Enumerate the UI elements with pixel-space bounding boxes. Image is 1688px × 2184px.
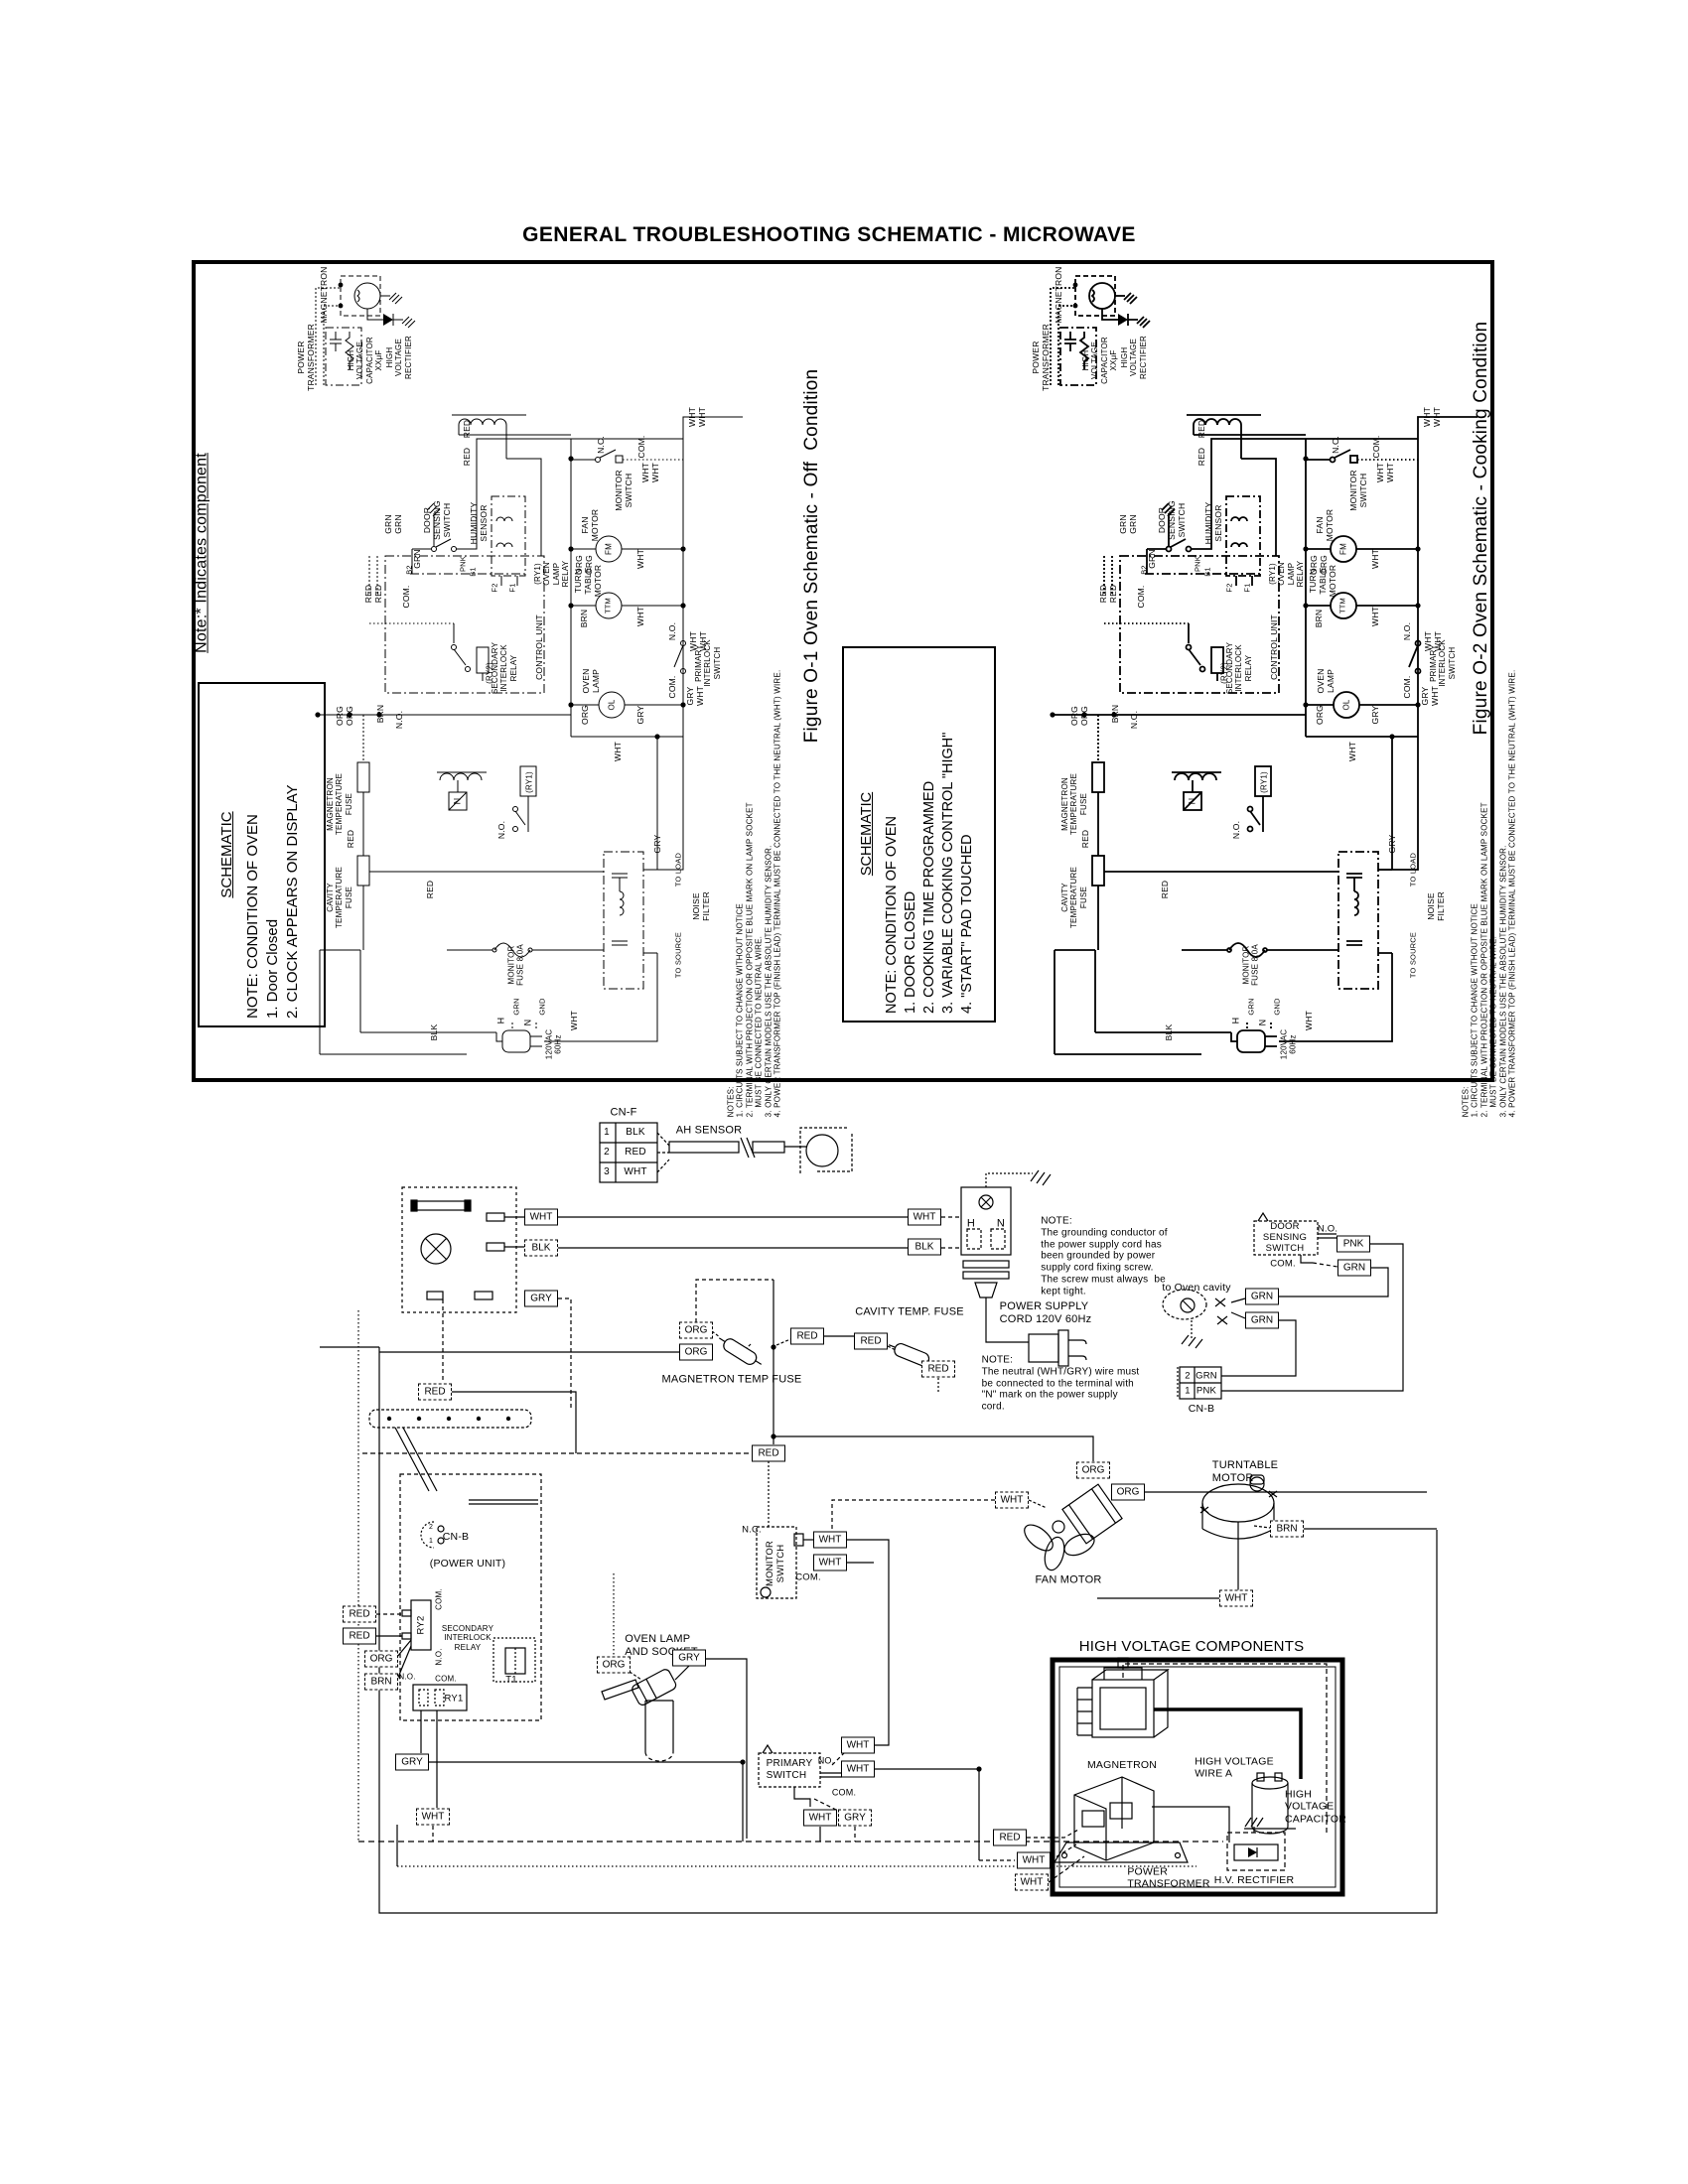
wire-tag-red: RED <box>854 1333 888 1350</box>
wire-tag-wht: WHT <box>416 1809 450 1826</box>
control-unit-label: CONTROL UNIT <box>1269 614 1279 680</box>
schematic-label: RED <box>1080 830 1090 849</box>
wire-tag-red: RED <box>343 1606 376 1623</box>
schematic-label: COM. <box>401 586 411 609</box>
hv-capacitor-label: HIGH VOLTAGE CAPACITOR <box>1285 1788 1346 1825</box>
schematic-label: CN-B <box>443 1531 469 1543</box>
schematic-label: TO LOAD <box>1410 853 1419 887</box>
cavity-temp-fuse-label: CAVITY TEMPERATURE FUSE <box>1060 867 1088 928</box>
schematic-label: OL <box>607 699 616 710</box>
wire-tag-red: RED <box>993 1830 1027 1846</box>
wire-tag-gry: GRY <box>395 1754 429 1771</box>
schematic-label: N <box>997 1218 1005 1231</box>
turntable-motor-label: TURN TABLE MOTOR <box>1308 565 1337 597</box>
primary-interlock-label: PRIMARY INTERLOCK SWITCH <box>694 639 722 687</box>
magnetron-temp-fuse-label: MAGNETRON TEMP FUSE <box>662 1374 802 1387</box>
wire-tag-blk: BLK <box>524 1240 558 1257</box>
schematic-label: PNK <box>1195 556 1203 572</box>
wire-tag-pnk: PNK <box>1336 1236 1370 1253</box>
schematic-label: COM. <box>1136 586 1146 609</box>
schematic-label: RED <box>425 881 435 899</box>
schematic-label: N.O. <box>1402 622 1412 640</box>
noise-filter-label: NOISE FILTER <box>1426 891 1446 921</box>
schematic-label: GRY <box>635 706 645 725</box>
schematic-label: GND <box>1274 998 1283 1015</box>
schematic-label: RY2 <box>415 1616 426 1635</box>
hv-capacitor-label: HIGH VOLTAGE CAPACITOR XXμF <box>347 337 384 384</box>
wire-tag-org: ORG <box>679 1322 713 1339</box>
schematic-label: H <box>967 1218 975 1231</box>
schematic-label: RED <box>1196 420 1206 439</box>
schematic-label: RED <box>462 448 472 467</box>
monitor-fuse-label: MONITOR FUSE 8.0A <box>1242 944 1261 986</box>
wire-tag-brn: BRN <box>1270 1521 1304 1538</box>
schematic-label: WHT <box>1304 1011 1314 1030</box>
magnetron-label: MAGNETRON <box>1087 1759 1157 1771</box>
schematic-label: WHT <box>1370 607 1380 626</box>
wire-tag-grn: GRN <box>1245 1312 1279 1329</box>
schematic-label: WHT WHT <box>687 407 707 427</box>
schematic-label: N.O. <box>667 622 677 640</box>
monitor-switch-label: MONITOR SWITCH <box>1348 470 1368 510</box>
schematic-label: BLK <box>626 1127 645 1139</box>
neutral-note: NOTE: The neutral (WHT/GRY) wire must be… <box>982 1355 1140 1414</box>
schematic-label: WHT <box>569 1011 579 1030</box>
schematic-label: GRY <box>1387 835 1397 854</box>
wire-tag-org: ORG <box>1111 1484 1145 1501</box>
schematic-label: COM. <box>636 436 646 459</box>
door-sensing-switch-label: DOOR SENSING SWITCH <box>1263 1221 1307 1255</box>
schematic-label: 2 <box>429 1524 433 1532</box>
supply-voltage-label: 120VAC 60Hz <box>1280 1029 1299 1059</box>
schematic-label: COM. <box>435 1674 457 1683</box>
schematic-label: BLK <box>1164 1024 1174 1041</box>
schematic-notes: NOTES: 1. CIRCUITS SUBJECT TO CHANGE WIT… <box>727 670 783 1118</box>
door-sensing-label: DOOR SENSING SWITCH <box>422 500 452 540</box>
schematic-label: ORG <box>1315 705 1325 725</box>
schematic-label: 1 <box>1185 1385 1190 1396</box>
wire-tag-red: RED <box>752 1445 785 1462</box>
schematic-label: WHT <box>613 742 623 761</box>
humidity-sensor-label: HUMIDITY SENSOR <box>469 502 489 545</box>
ah-sensor-label: AH SENSOR <box>676 1125 743 1138</box>
schematic-label: N.C. <box>1331 436 1340 454</box>
schematic-label: WHT <box>1370 549 1380 569</box>
schematic-label: H <box>1231 1018 1242 1024</box>
schematic-label: N.O. <box>398 1672 415 1681</box>
schematic-label: RED RED <box>1098 585 1118 604</box>
schematic-label: (RY1) <box>1259 771 1268 793</box>
wire-tag-wht: WHT <box>1219 1590 1253 1607</box>
schematic-label: 1 <box>429 1538 433 1546</box>
power-transformer-label: POWER TRANSFORMER <box>1127 1866 1209 1891</box>
schematic-label: B2 <box>406 565 415 575</box>
hv-rectifier-label: HIGH VOLTAGE RECTIFIER <box>1120 336 1148 379</box>
schematic-label: WHT WHT <box>640 463 660 482</box>
wire-tag-red: RED <box>921 1361 955 1378</box>
schematic-label: TO LOAD <box>675 853 684 887</box>
wire-tag-org: ORG <box>597 1657 631 1674</box>
schematic-label: ORG ORG <box>335 706 354 726</box>
schematic-label: PNK <box>460 556 469 572</box>
turntable-motor-label: TURN TABLE MOTOR <box>573 565 603 597</box>
schematic-label: GRY <box>652 835 662 854</box>
hv-rectifier-label: HIGH VOLTAGE RECTIFIER <box>385 336 413 379</box>
magnetron-label: MAGNETRON <box>319 266 329 323</box>
schematic-label: 3 <box>604 1166 610 1178</box>
fan-motor-label: FAN MOTOR <box>1036 1574 1102 1587</box>
schematic-label: RED RED <box>363 585 383 604</box>
schematic-label: WHT <box>635 607 645 626</box>
schematic-label: BRN <box>1314 610 1324 628</box>
schematic-label: F2 <box>492 583 500 592</box>
schematic-label: ORG <box>580 705 590 725</box>
wire-tag-wht: WHT <box>1017 1852 1051 1869</box>
oven-lamp-relay-label: (RY1) OVEN LAMP RELAY <box>1268 561 1306 588</box>
primary-switch-label: PRIMARY SWITCH <box>767 1758 813 1782</box>
schematic-label: GRY WHT <box>1420 686 1440 706</box>
magnetron-temp-fuse-label: MAGNETRON TEMPERATURE FUSE <box>326 773 353 835</box>
schematic-label: COM. <box>1270 1258 1296 1269</box>
magnetron-temp-fuse-label: MAGNETRON TEMPERATURE FUSE <box>1060 773 1088 835</box>
wire-tag-wht: WHT <box>995 1492 1029 1509</box>
wire-tag-wht: WHT <box>813 1555 847 1571</box>
secondary-interlock-label: SECONDARY INTERLOCK RELAY <box>1225 642 1253 694</box>
schematic-label: TO SOURCE <box>1410 932 1419 978</box>
schematic-label: N.O. <box>1318 1223 1337 1234</box>
oven-lamp-label: OVEN LAMP <box>1316 669 1336 694</box>
schematic-label: TTM <box>1339 598 1348 614</box>
schematic-label: OL <box>1341 699 1350 710</box>
oven-lamp-relay-label: (RY1) OVEN LAMP RELAY <box>533 561 571 588</box>
wire-tag-gry: GRY <box>672 1650 706 1667</box>
schematic-label: BLK <box>429 1024 439 1041</box>
schematic-notes: NOTES: 1. CIRCUITS SUBJECT TO CHANGE WIT… <box>1462 670 1518 1118</box>
schematic-label: GRN GRN <box>383 514 403 534</box>
schematic-label: WHT <box>624 1166 646 1178</box>
magnetron-label: MAGNETRON <box>1054 266 1063 323</box>
cnb-connector-label: CN-B <box>1189 1403 1214 1415</box>
schematic-label: BRN <box>1110 705 1120 724</box>
schematic-label: 2 <box>1185 1370 1190 1381</box>
wire-tag-grn: GRN <box>1337 1260 1371 1277</box>
power-supply-cord-label: POWER SUPPLY CORD 120V 60Hz <box>1000 1300 1092 1326</box>
schematic-label: F1 <box>509 583 518 592</box>
grounding-note: NOTE: The grounding conductor of the pow… <box>1041 1216 1168 1298</box>
cavity-temp-fuse-label: CAVITY TEMPERATURE FUSE <box>326 867 353 928</box>
wire-tag-wht: WHT <box>1015 1874 1049 1891</box>
schematic-label: F2 <box>1226 583 1235 592</box>
schematic-label: RED <box>346 830 355 849</box>
schematic-label: GND <box>539 998 548 1015</box>
schematic-label: N.O. <box>394 711 404 729</box>
wire-tag-wht: WHT <box>813 1532 847 1549</box>
schematic-label: GRN <box>1248 998 1257 1015</box>
primary-interlock-label: PRIMARY INTERLOCK SWITCH <box>1429 639 1457 687</box>
schematic-label: COM. <box>795 1571 821 1582</box>
schematic-label: N.O. <box>1129 711 1139 729</box>
schematic-label: GRN <box>1196 1370 1217 1381</box>
wire-tag-wht: WHT <box>908 1209 941 1226</box>
wire-tag-org: ORG <box>364 1651 398 1668</box>
hv-components-title: HIGH VOLTAGE COMPONENTS <box>1079 1638 1305 1656</box>
schematic-label: COM. <box>1371 436 1381 459</box>
hv-rectifier-label: H.V. RECTIFIER <box>1214 1874 1295 1886</box>
monitor-switch-label: MONITOR SWITCH <box>614 470 633 510</box>
turntable-motor-label: TURNTABLE MOTOR <box>1212 1459 1278 1485</box>
schematic-label: COM. <box>1402 676 1412 699</box>
schematic-label: GRN <box>513 998 522 1015</box>
power-transformer-label: POWER TRANSFORMER <box>296 324 316 391</box>
cnf-connector-label: CN-F <box>610 1107 636 1120</box>
power-unit-label: (POWER UNIT) <box>430 1558 505 1570</box>
schematic-label: FM <box>604 543 613 555</box>
humidity-sensor-label: HUMIDITY SENSOR <box>1203 502 1223 545</box>
schematic-label: PNK <box>1196 1385 1216 1396</box>
schematic-label: (RY1) <box>524 771 533 793</box>
oven-cavity-label: to Oven cavity <box>1162 1282 1230 1294</box>
schematic-label: FM <box>1338 543 1347 555</box>
schematic-label: TTM <box>605 598 614 614</box>
control-unit-label: CONTROL UNIT <box>534 614 544 680</box>
hv-wire-a-label: HIGH VOLTAGE WIRE A <box>1195 1756 1274 1781</box>
schematic-label: WHT WHT <box>1422 407 1442 427</box>
schematic-label: RY1 <box>445 1693 464 1704</box>
wire-tag-gry: GRY <box>524 1291 558 1307</box>
schematic-label: N <box>453 798 464 805</box>
schematic-label: N.O. <box>496 821 506 839</box>
schematic-label: WHT <box>1347 742 1357 761</box>
wire-tag-red: RED <box>418 1384 452 1401</box>
wire-tag-red: RED <box>790 1328 824 1345</box>
schematic-label: F1 <box>1244 583 1253 592</box>
wire-tag-wht: WHT <box>524 1209 558 1226</box>
schematic-label: RED <box>625 1147 646 1159</box>
schematic-label: B1 <box>1204 567 1213 577</box>
wire-tag-wht: WHT <box>841 1761 875 1778</box>
schematic-label: GRY <box>1370 706 1380 725</box>
schematic-label: N <box>1258 1020 1269 1026</box>
schematic-label: 1 <box>604 1127 610 1139</box>
cavity-temp-fuse-label: CAVITY TEMP. FUSE <box>855 1306 964 1319</box>
page: GENERAL TROUBLESHOOTING SCHEMATIC - MICR… <box>0 0 1688 2184</box>
wire-tag-brn: BRN <box>364 1674 398 1691</box>
schematic-label: T1 <box>505 1674 517 1685</box>
schematic-label: COM. <box>832 1788 856 1799</box>
wire-tag-grn: GRN <box>1245 1289 1279 1305</box>
monitor-fuse-label: MONITOR FUSE 8.0A <box>507 944 526 986</box>
hv-capacitor-label: HIGH VOLTAGE CAPACITOR XXμF <box>1081 337 1119 384</box>
wire-tag-gry: GRY <box>838 1810 872 1827</box>
schematic-label: RED <box>462 420 472 439</box>
schematic-label: RED <box>1160 881 1170 899</box>
schematic-label: 2 <box>604 1147 610 1159</box>
schematic-label: WHT <box>635 549 645 569</box>
monitor-switch-label: MONITOR SWITCH <box>765 1541 786 1586</box>
wire-tag-org: ORG <box>679 1344 713 1361</box>
schematic-label: B1 <box>470 567 479 577</box>
schematic-label: RED <box>1196 448 1206 467</box>
schematic-label: B2 <box>1141 565 1150 575</box>
schematic-label: COM. <box>434 1588 443 1610</box>
schematic-label: GRY WHT <box>685 686 705 706</box>
schematic-label: BRN <box>579 610 589 628</box>
schematic-label: WHT WHT <box>1375 463 1395 482</box>
schematic-label: GRN GRN <box>1118 514 1138 534</box>
wire-tag-org: ORG <box>1076 1462 1110 1479</box>
schematic-label: COM. <box>667 676 677 699</box>
door-sensing-label: DOOR SENSING SWITCH <box>1157 500 1187 540</box>
schematic-artwork <box>0 0 1688 2184</box>
schematic-label: TO SOURCE <box>675 932 684 978</box>
schematic-label: N.O. <box>1231 821 1241 839</box>
oven-lamp-label: OVEN LAMP <box>581 669 601 694</box>
wire-tag-red: RED <box>343 1628 376 1645</box>
schematic-label: BRN <box>375 705 385 724</box>
power-transformer-label: POWER TRANSFORMER <box>1031 324 1051 391</box>
schematic-label: ORG ORG <box>1069 706 1089 726</box>
supply-voltage-label: 120VAC 60Hz <box>545 1029 564 1059</box>
schematic-label: N.C. <box>596 436 606 454</box>
wire-tag-wht: WHT <box>803 1810 837 1827</box>
fan-motor-label: FAN MOTOR <box>580 509 600 541</box>
schematic-label: NO. <box>818 1756 835 1767</box>
wire-tag-blk: BLK <box>908 1239 941 1256</box>
wire-tag-wht: WHT <box>841 1737 875 1754</box>
noise-filter-label: NOISE FILTER <box>691 891 711 921</box>
schematic-label: N.C. <box>742 1524 762 1535</box>
schematic-label: H <box>496 1018 507 1024</box>
secondary-interlock-relay-label: SECONDARY INTERLOCK RELAY <box>442 1624 493 1652</box>
schematic-label: N <box>523 1020 534 1026</box>
fan-motor-label: FAN MOTOR <box>1315 509 1335 541</box>
schematic-label: N <box>1188 798 1198 805</box>
secondary-interlock-label: SECONDARY INTERLOCK RELAY <box>491 642 518 694</box>
